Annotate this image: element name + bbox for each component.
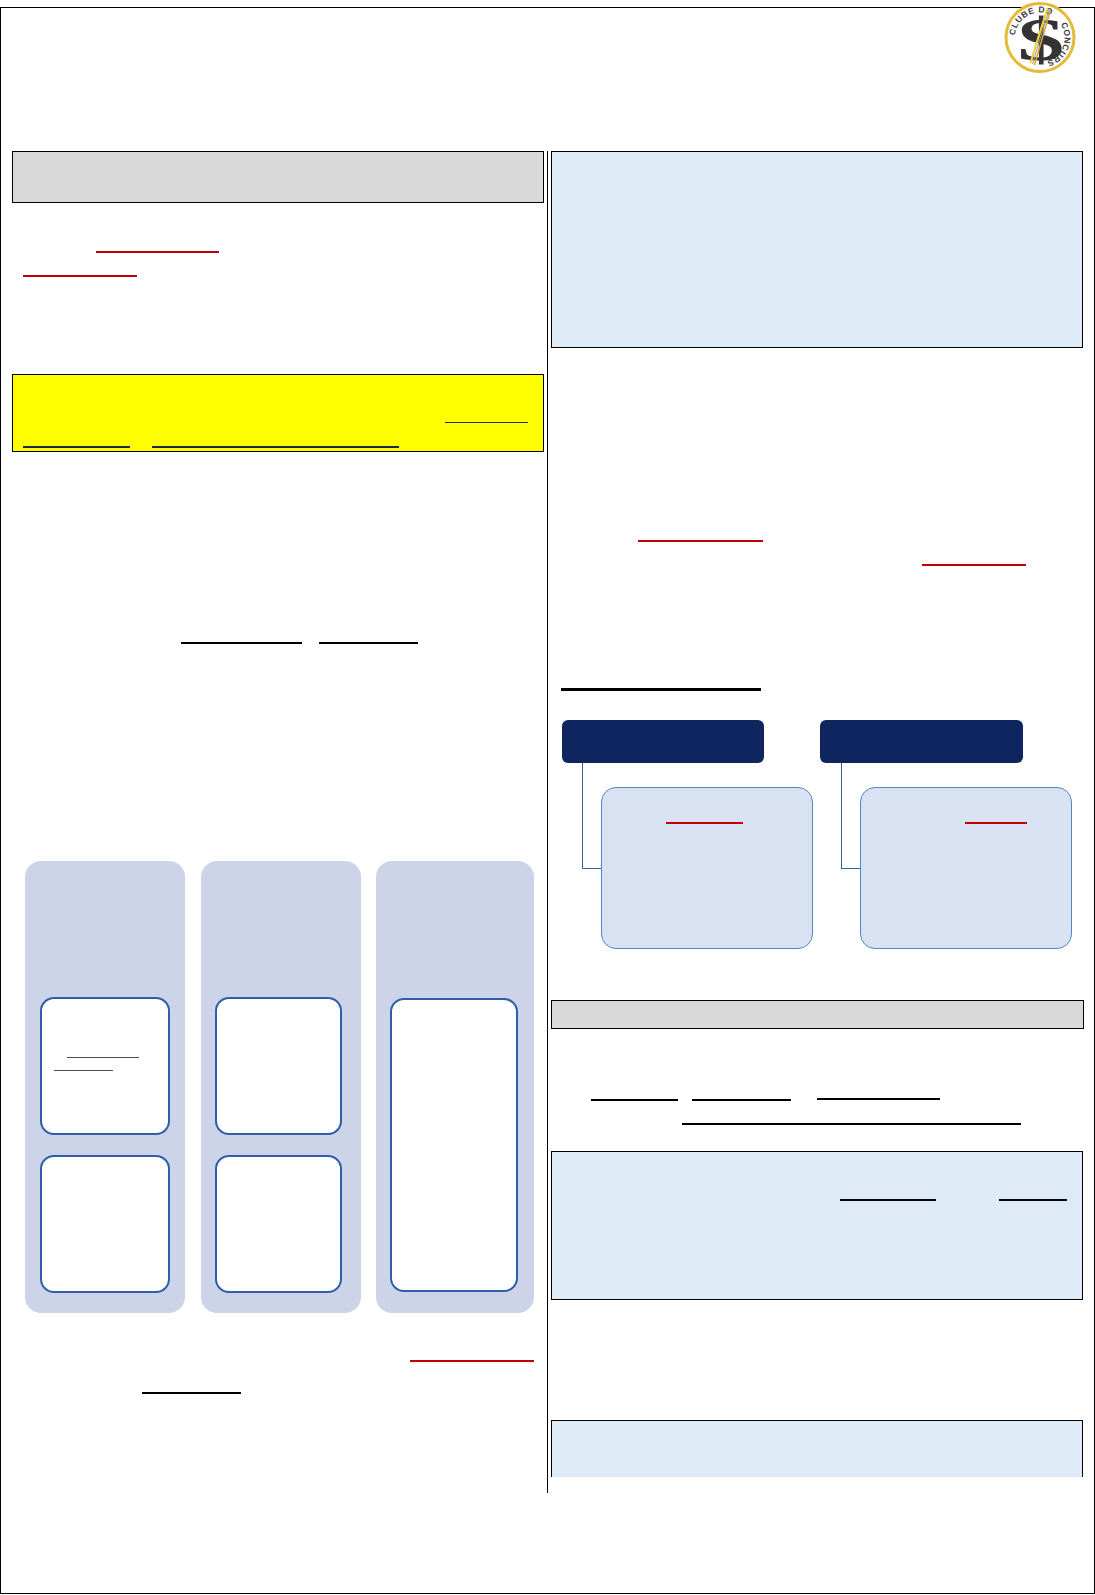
svg-text:$: $ <box>1018 5 1064 73</box>
